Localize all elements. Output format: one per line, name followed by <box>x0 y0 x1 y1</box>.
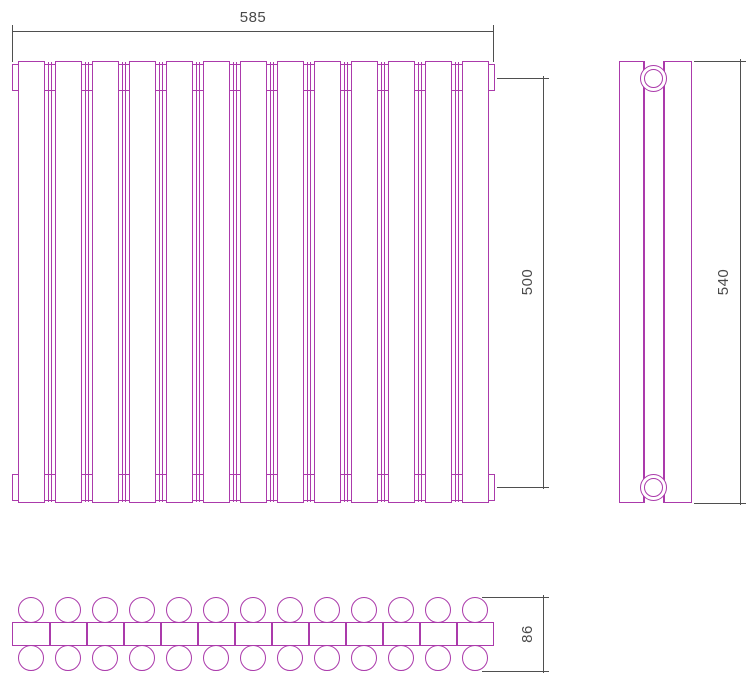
radiator-section-panel <box>92 61 119 503</box>
section-gap-tube-line <box>418 62 420 502</box>
dimension-height-line <box>740 59 741 505</box>
radiator-section-panel <box>351 61 378 503</box>
tube-circle-back-row <box>462 645 488 671</box>
web-band-divider <box>197 623 199 645</box>
section-gap-tube-line <box>233 62 235 502</box>
tube-circle-front-row <box>129 597 155 623</box>
section-connector-bottom <box>340 474 352 501</box>
section-gap-tube-line <box>48 62 50 502</box>
tube-circle-front-row <box>240 597 266 623</box>
dimension-width-extension-right <box>493 25 494 62</box>
section-connector-bottom <box>118 474 130 501</box>
section-connector-bottom <box>81 474 93 501</box>
section-gap-tube-line <box>51 62 53 502</box>
tube-circle-back-row <box>166 645 192 671</box>
dimension-depth-line <box>543 595 544 673</box>
dimension-depth-extension-bottom <box>482 671 549 672</box>
web-band-divider <box>308 623 310 645</box>
section-connector-bottom <box>229 474 241 501</box>
section-connector-bottom <box>303 474 315 501</box>
dimension-width-label: 585 <box>223 9 283 27</box>
web-band-divider <box>49 623 51 645</box>
section-connector-top <box>340 64 352 91</box>
dimension-width-line <box>12 31 494 32</box>
radiator-section-panel <box>240 61 267 503</box>
dimension-height-extension-bottom <box>694 503 746 504</box>
tube-circle-back-row <box>18 645 44 671</box>
section-connector-bottom <box>155 474 167 501</box>
tube-circle-back-row <box>425 645 451 671</box>
right-tab-bottom <box>488 474 496 501</box>
radiator-section-panel <box>388 61 415 503</box>
radiator-section-panel <box>425 61 452 503</box>
radiator-section-panel <box>166 61 193 503</box>
web-band-divider <box>345 623 347 645</box>
radiator-section-panel <box>462 61 489 503</box>
drawing-canvas: 585 500 540 86 <box>0 0 750 682</box>
tube-circle-back-row <box>92 645 118 671</box>
top-notch <box>645 60 663 64</box>
section-connector-top <box>118 64 130 91</box>
section-gap-tube-line <box>162 62 164 502</box>
section-connector-bottom <box>377 474 389 501</box>
pipe-connection-circle-inner <box>644 478 663 497</box>
web-band-divider <box>382 623 384 645</box>
section-connector-top <box>451 64 463 91</box>
section-connector-top <box>303 64 315 91</box>
radiator-section-panel <box>203 61 230 503</box>
radiator-section-panel <box>277 61 304 503</box>
tube-circle-back-row <box>351 645 377 671</box>
section-connector-top <box>44 64 56 91</box>
section-gap-tube-line <box>159 62 161 502</box>
section-connector-top <box>81 64 93 91</box>
section-gap-tube-line <box>455 62 457 502</box>
section-connector-top <box>266 64 278 91</box>
tube-circle-back-row <box>277 645 303 671</box>
dimension-axis-line <box>543 76 544 489</box>
tube-circle-front-row <box>351 597 377 623</box>
tube-circle-front-row <box>425 597 451 623</box>
web-band-divider <box>86 623 88 645</box>
radiator-section-panel <box>55 61 82 503</box>
section-gap-tube-line <box>270 62 272 502</box>
section-gap-tube-line <box>196 62 198 502</box>
section-gap-tube-line <box>421 62 423 502</box>
tube-circle-back-row <box>129 645 155 671</box>
section-gap-tube-line <box>347 62 349 502</box>
section-gap-tube-line <box>122 62 124 502</box>
dimension-axis-extension-bottom <box>497 487 549 488</box>
section-gap-tube-line <box>307 62 309 502</box>
section-gap-tube-line <box>310 62 312 502</box>
section-connector-bottom <box>192 474 204 501</box>
web-band-divider <box>419 623 421 645</box>
dimension-width-extension-left <box>12 25 13 62</box>
dimension-axis-extension-top <box>497 78 549 79</box>
web-band-divider <box>456 623 458 645</box>
web-band-divider <box>271 623 273 645</box>
tube-circle-front-row <box>18 597 44 623</box>
tube-circle-front-row <box>203 597 229 623</box>
section-gap-tube-line <box>199 62 201 502</box>
tube-circle-back-row <box>314 645 340 671</box>
side-tube-line <box>643 62 645 502</box>
tube-circle-front-row <box>55 597 81 623</box>
tube-circle-back-row <box>388 645 414 671</box>
tube-circle-back-row <box>55 645 81 671</box>
radiator-section-panel <box>314 61 341 503</box>
dimension-axis-label: 500 <box>519 252 537 312</box>
web-band <box>12 622 494 646</box>
tube-circle-back-row <box>240 645 266 671</box>
radiator-section-panel <box>129 61 156 503</box>
section-connector-top <box>155 64 167 91</box>
section-connector-bottom <box>414 474 426 501</box>
section-connector-top <box>414 64 426 91</box>
section-gap-tube-line <box>344 62 346 502</box>
section-gap-tube-line <box>458 62 460 502</box>
section-connector-top <box>192 64 204 91</box>
section-gap-tube-line <box>88 62 90 502</box>
web-band-divider <box>160 623 162 645</box>
section-gap-tube-line <box>85 62 87 502</box>
section-gap-tube-line <box>381 62 383 502</box>
side-tube-line <box>663 62 665 502</box>
pipe-connection-circle-inner <box>644 69 663 88</box>
dimension-depth-extension-top <box>482 597 549 598</box>
dimension-depth-label: 86 <box>519 604 537 664</box>
tube-circle-front-row <box>388 597 414 623</box>
section-connector-bottom <box>266 474 278 501</box>
section-connector-bottom <box>451 474 463 501</box>
section-connector-top <box>229 64 241 91</box>
tube-circle-back-row <box>203 645 229 671</box>
tube-circle-front-row <box>277 597 303 623</box>
tube-circle-front-row <box>166 597 192 623</box>
section-gap-tube-line <box>273 62 275 502</box>
right-tab-top <box>488 64 496 91</box>
tube-circle-front-row <box>314 597 340 623</box>
radiator-section-panel <box>18 61 45 503</box>
dimension-height-extension-top <box>694 61 746 62</box>
web-band-divider <box>123 623 125 645</box>
section-connector-top <box>377 64 389 91</box>
tube-circle-front-row <box>92 597 118 623</box>
section-connector-bottom <box>44 474 56 501</box>
dimension-height-label: 540 <box>715 252 733 312</box>
side-body <box>619 61 692 503</box>
bottom-notch <box>645 500 663 504</box>
section-gap-tube-line <box>236 62 238 502</box>
section-gap-tube-line <box>125 62 127 502</box>
web-band-divider <box>234 623 236 645</box>
tube-circle-front-row <box>462 597 488 623</box>
section-gap-tube-line <box>384 62 386 502</box>
